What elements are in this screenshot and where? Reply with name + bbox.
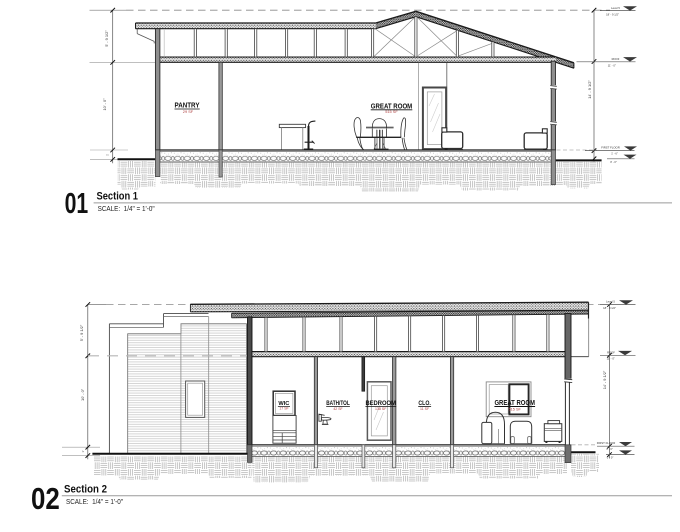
svg-text:515 SF: 515 SF	[385, 109, 398, 114]
svg-text:SCALE: 1/4" = 1'-0": SCALE: 1/4" = 1'-0"	[66, 497, 123, 506]
svg-text:FIRST FLOOR: FIRST FLOOR	[597, 441, 616, 445]
svg-text:5' - 9 1/2": 5' - 9 1/2"	[79, 324, 84, 341]
svg-text:FIRST FLOOR: FIRST FLOOR	[601, 146, 620, 150]
svg-text:1' - 6": 1' - 6"	[606, 447, 613, 451]
svg-text:01: 01	[65, 188, 89, 220]
svg-text:ROOF: ROOF	[612, 57, 620, 61]
svg-text:0' - 0": 0' - 0"	[607, 456, 614, 460]
svg-text:0' - 0": 0' - 0"	[610, 160, 617, 164]
svg-text:Level 5: Level 5	[611, 6, 620, 10]
svg-text:Level 5: Level 5	[606, 300, 615, 304]
svg-text:SCALE: 1/4" = 1'-0": SCALE: 1/4" = 1'-0"	[98, 204, 155, 213]
svg-text:14' - 9 1/2": 14' - 9 1/2"	[602, 370, 607, 389]
svg-text:14' - 9 1/2": 14' - 9 1/2"	[587, 80, 592, 99]
svg-text:138 SF: 138 SF	[375, 407, 386, 411]
svg-text:11 SF: 11 SF	[420, 407, 429, 411]
svg-text:42 SF: 42 SF	[333, 407, 342, 411]
svg-text:11' - 0": 11' - 0"	[608, 63, 616, 67]
svg-text:Section 1: Section 1	[97, 191, 139, 203]
svg-text:02: 02	[31, 482, 60, 516]
svg-text:ROOF: ROOF	[607, 350, 615, 354]
svg-text:10' - 0": 10' - 0"	[80, 388, 85, 401]
svg-text:515 SF: 515 SF	[509, 407, 522, 411]
svg-text:17 SF: 17 SF	[279, 407, 288, 411]
svg-text:Section 2: Section 2	[64, 483, 107, 495]
svg-text:18' - 9 1/2": 18' - 9 1/2"	[603, 306, 616, 310]
svg-text:1' - 6": 1' - 6"	[611, 152, 618, 156]
svg-text:5' - 9 1/2": 5' - 9 1/2"	[104, 30, 109, 47]
svg-text:GREAT ROOM: GREAT ROOM	[494, 398, 535, 407]
svg-text:11' - 0": 11' - 0"	[607, 356, 615, 360]
svg-text:18' - 9 1/2": 18' - 9 1/2"	[606, 13, 619, 17]
svg-text:10' - 0": 10' - 0"	[102, 98, 107, 111]
svg-text:29 SF: 29 SF	[183, 109, 194, 114]
